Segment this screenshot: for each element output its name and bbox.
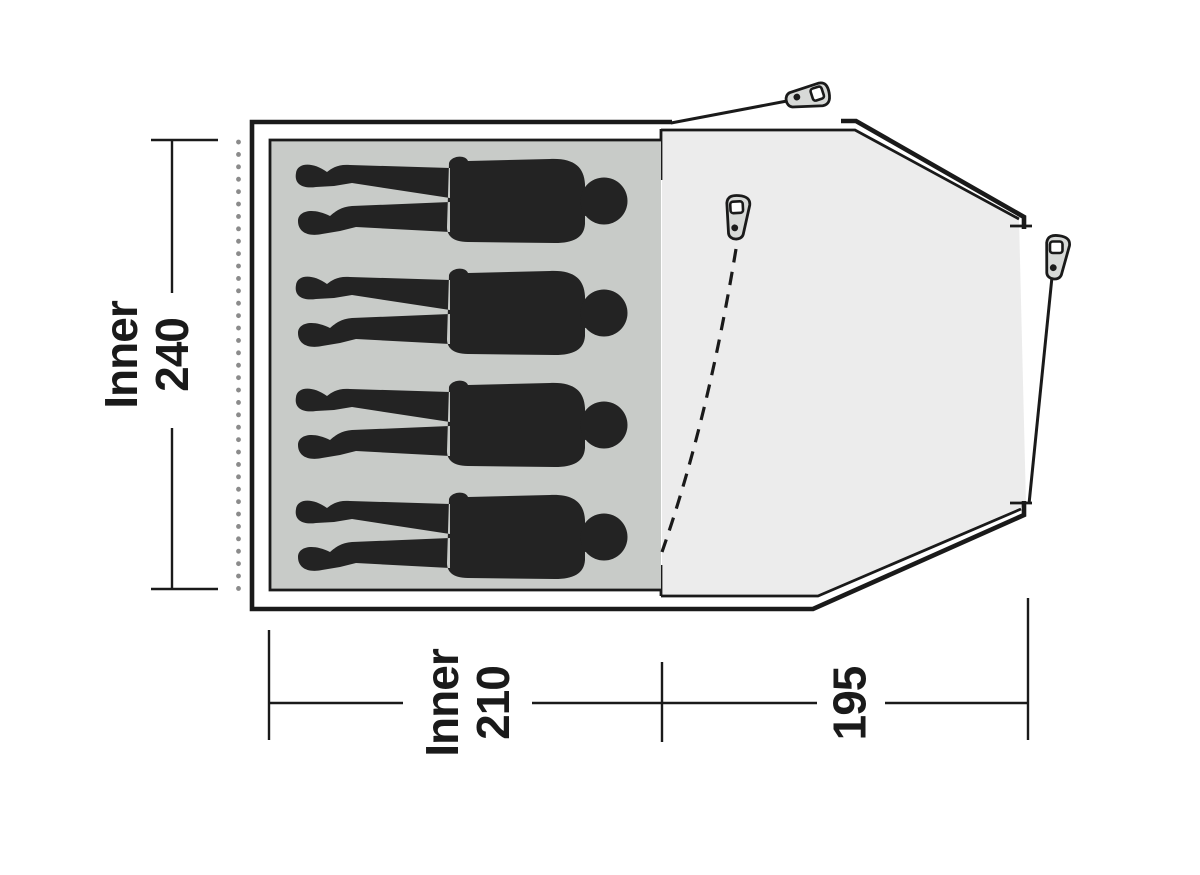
dimension-value: 210 — [468, 633, 519, 773]
dimension-label-inner-depth: Inner 240 — [96, 285, 198, 425]
dimension-value: 240 — [147, 285, 198, 425]
dimension-value: 195 — [825, 634, 876, 774]
porch-groundsheet — [662, 131, 1026, 595]
tent-peg-icon — [1042, 234, 1071, 280]
dimension-label-text: Inner — [96, 285, 147, 425]
tent-peg-icon — [784, 82, 831, 112]
dimension-label-text: Inner — [417, 633, 468, 773]
dimension-label-inner-width: Inner 210 — [417, 633, 519, 773]
tent-floorplan-diagram: Inner 240 Inner 210 195 — [0, 0, 1200, 875]
tent-floorplan-drawing — [0, 0, 1200, 875]
dimension-label-porch-width: 195 — [825, 634, 876, 774]
dimension-bottom — [269, 598, 1028, 742]
guy-rope-right — [1029, 277, 1052, 504]
guy-rope-top — [671, 101, 787, 123]
